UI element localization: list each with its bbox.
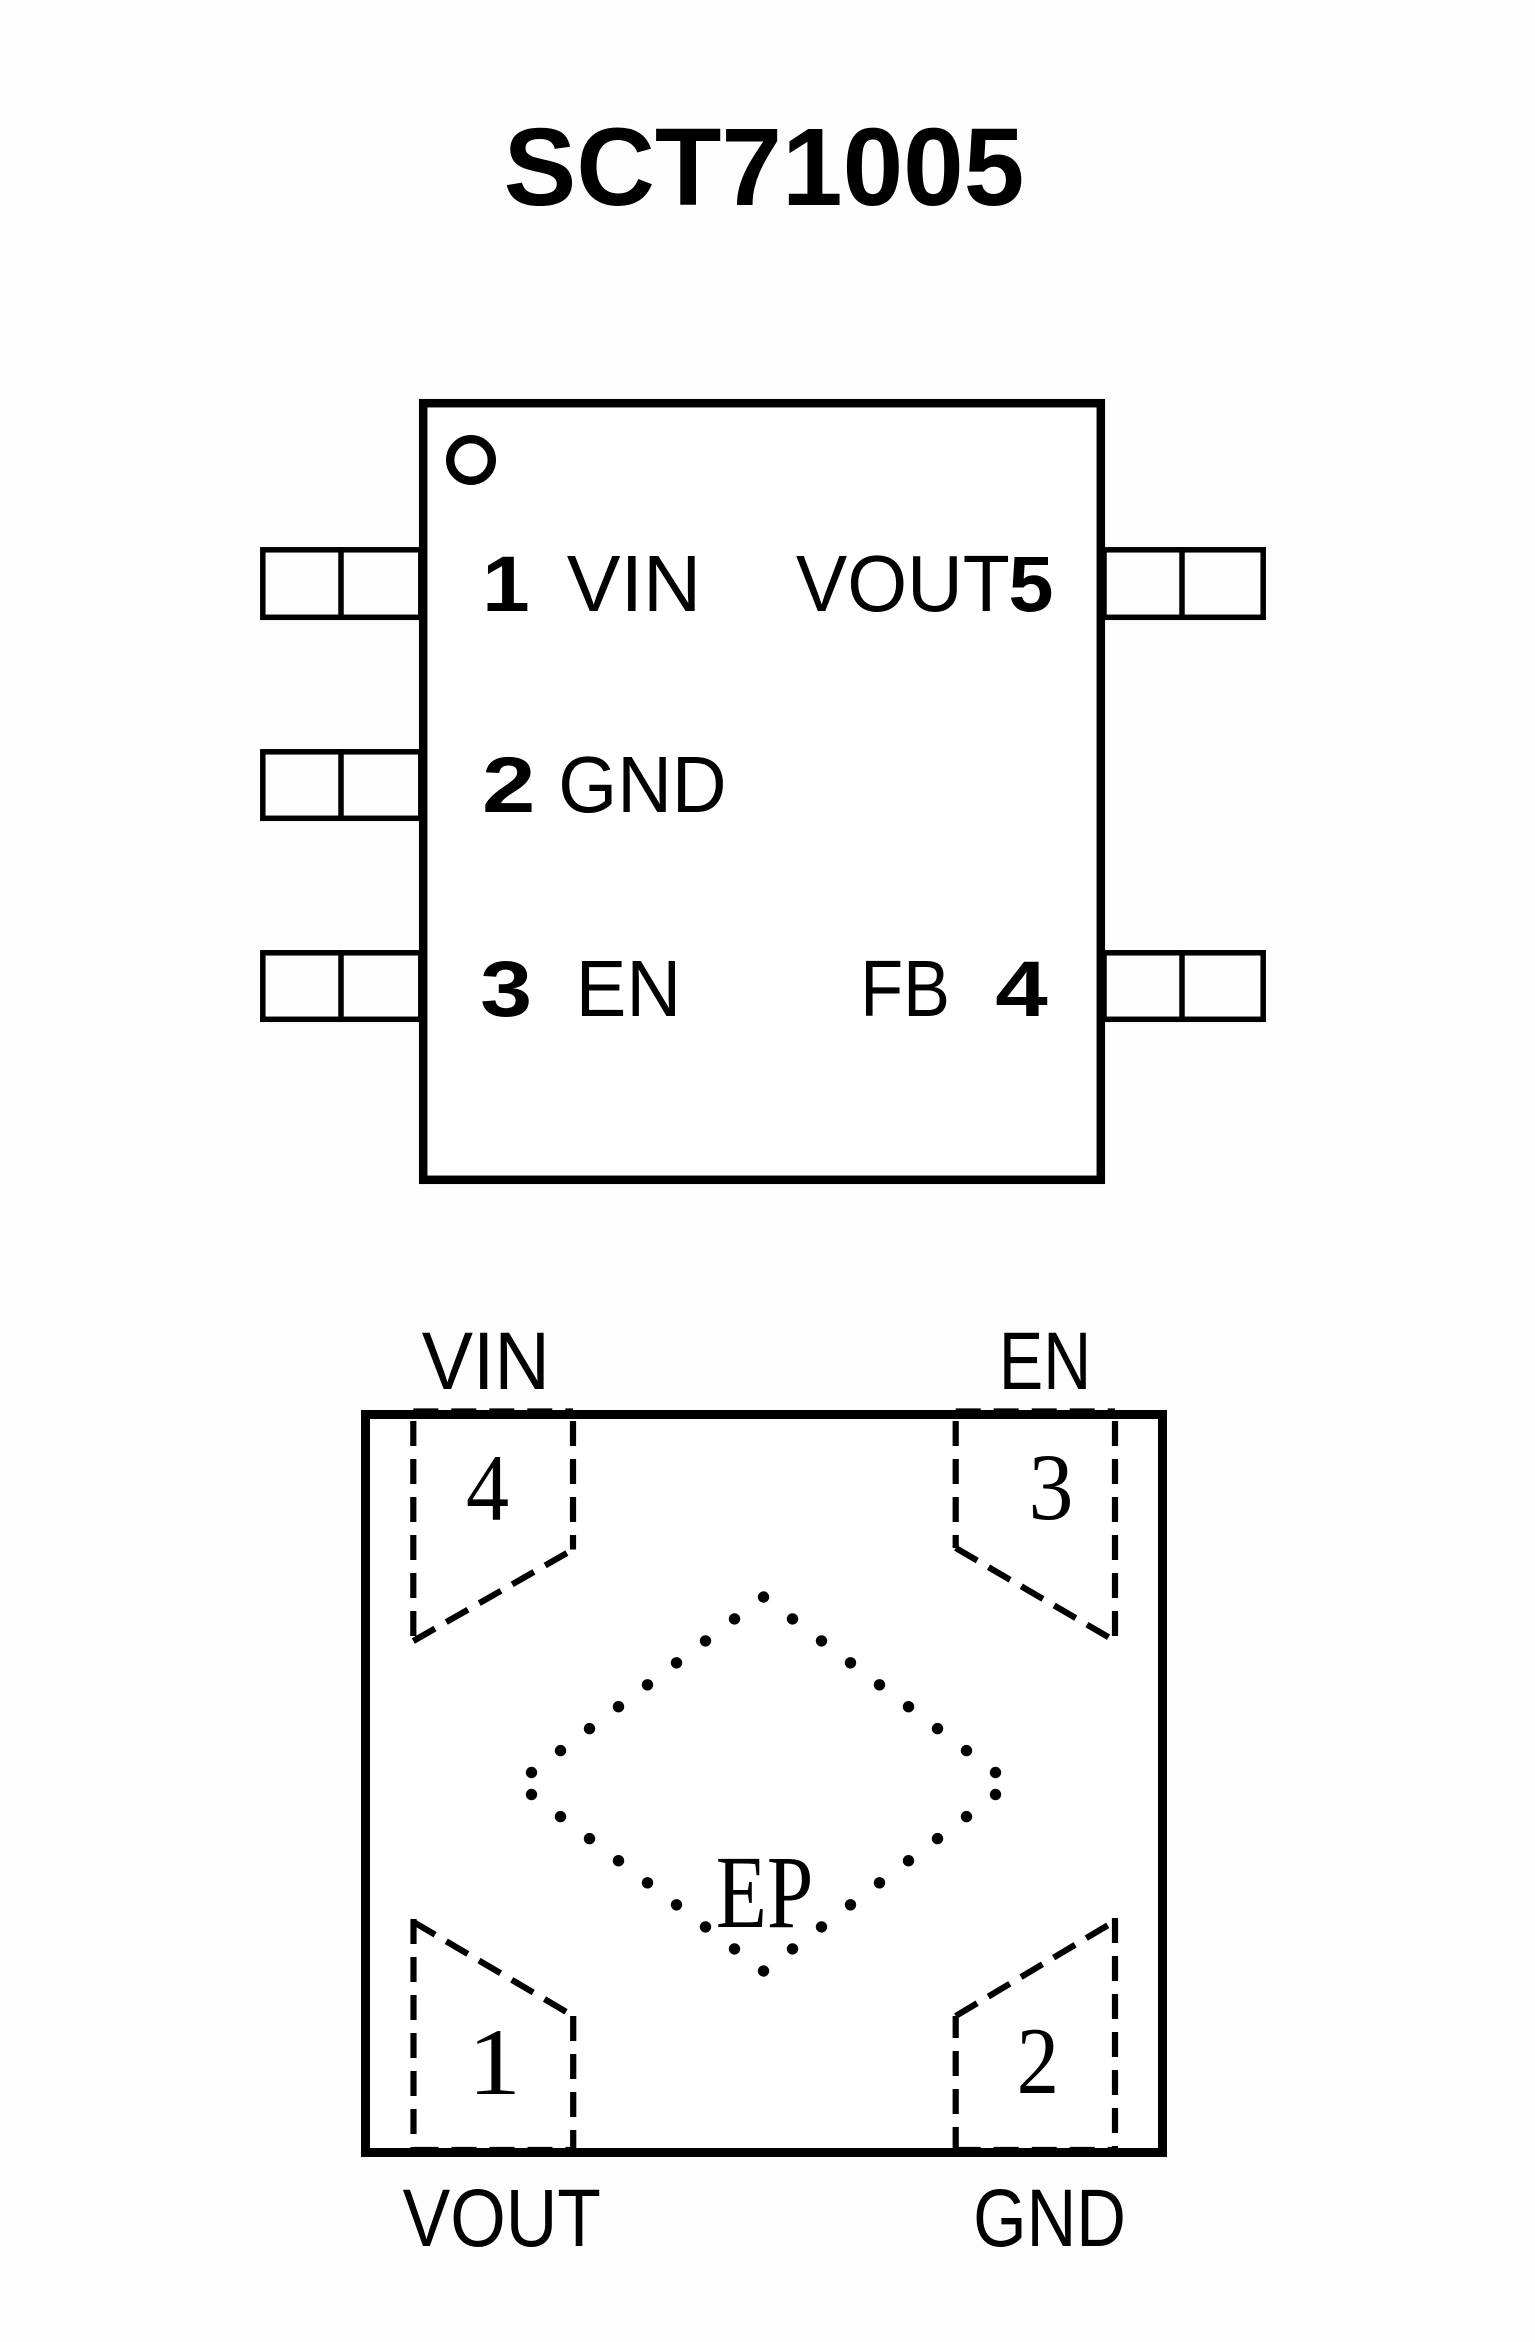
svg-text:VIN: VIN xyxy=(422,1315,550,1407)
svg-text:EN: EN xyxy=(999,1314,1091,1406)
svg-text:VOUT: VOUT xyxy=(403,2172,601,2264)
svg-text:4: 4 xyxy=(466,1435,509,1541)
svg-text:4: 4 xyxy=(995,945,1048,1033)
svg-text:VIN: VIN xyxy=(567,539,701,629)
svg-text:SCT71005: SCT71005 xyxy=(504,107,1025,230)
svg-text:GND: GND xyxy=(558,739,726,829)
svg-text:EP: EP xyxy=(716,1835,813,1950)
svg-text:3: 3 xyxy=(1029,1436,1074,1541)
svg-text:1: 1 xyxy=(482,540,530,628)
svg-text:GND: GND xyxy=(973,2173,1126,2264)
svg-text:EN: EN xyxy=(576,943,681,1033)
svg-text:2: 2 xyxy=(482,740,535,829)
svg-text:1: 1 xyxy=(468,2009,521,2114)
svg-text:VOUT: VOUT xyxy=(796,539,1010,629)
svg-text:FB: FB xyxy=(860,944,950,1033)
svg-text:5: 5 xyxy=(1009,540,1054,628)
svg-text:3: 3 xyxy=(480,946,532,1034)
svg-text:2: 2 xyxy=(1017,2010,1059,2114)
